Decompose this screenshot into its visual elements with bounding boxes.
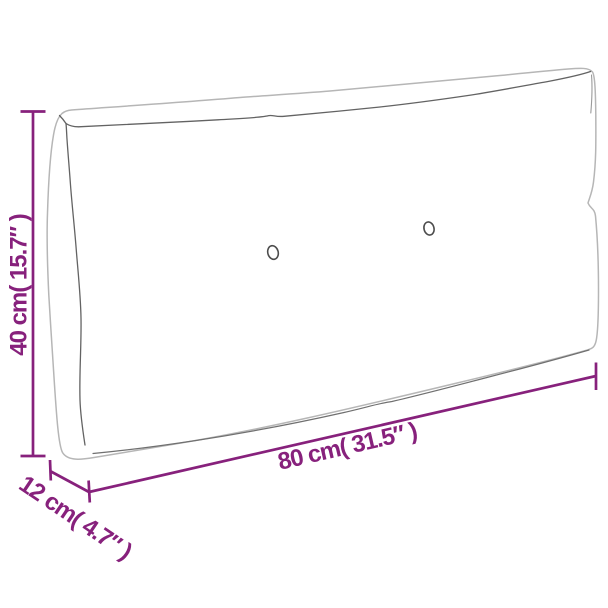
width-label: 80 cm( 31.5″ ) (275, 418, 419, 476)
product-dimension-image: 40 cm( 15.7″ ) 12 cm( 4.7″ ) 80 cm( 31.5… (0, 0, 608, 608)
height-label: 40 cm( 15.7″ ) (6, 214, 33, 356)
height-dimension: 40 cm( 15.7″ ) (6, 112, 46, 457)
dimension-diagram: 40 cm( 15.7″ ) 12 cm( 4.7″ ) 80 cm( 31.5… (0, 0, 608, 608)
cushion-drawing (47, 68, 598, 459)
cushion-button-right (423, 221, 436, 236)
cushion-button-left (266, 245, 279, 261)
cushion-seam-top-left (66, 72, 591, 446)
depth-dimension: 12 cm( 4.7″ ) (14, 460, 136, 565)
cushion-seam-corner-stub (60, 116, 67, 124)
cushion-outline (47, 68, 598, 459)
width-dimension: 80 cm( 31.5″ ) (89, 363, 596, 493)
cushion-seam-right (591, 75, 592, 113)
depth-dimension-tick-left (50, 460, 51, 481)
